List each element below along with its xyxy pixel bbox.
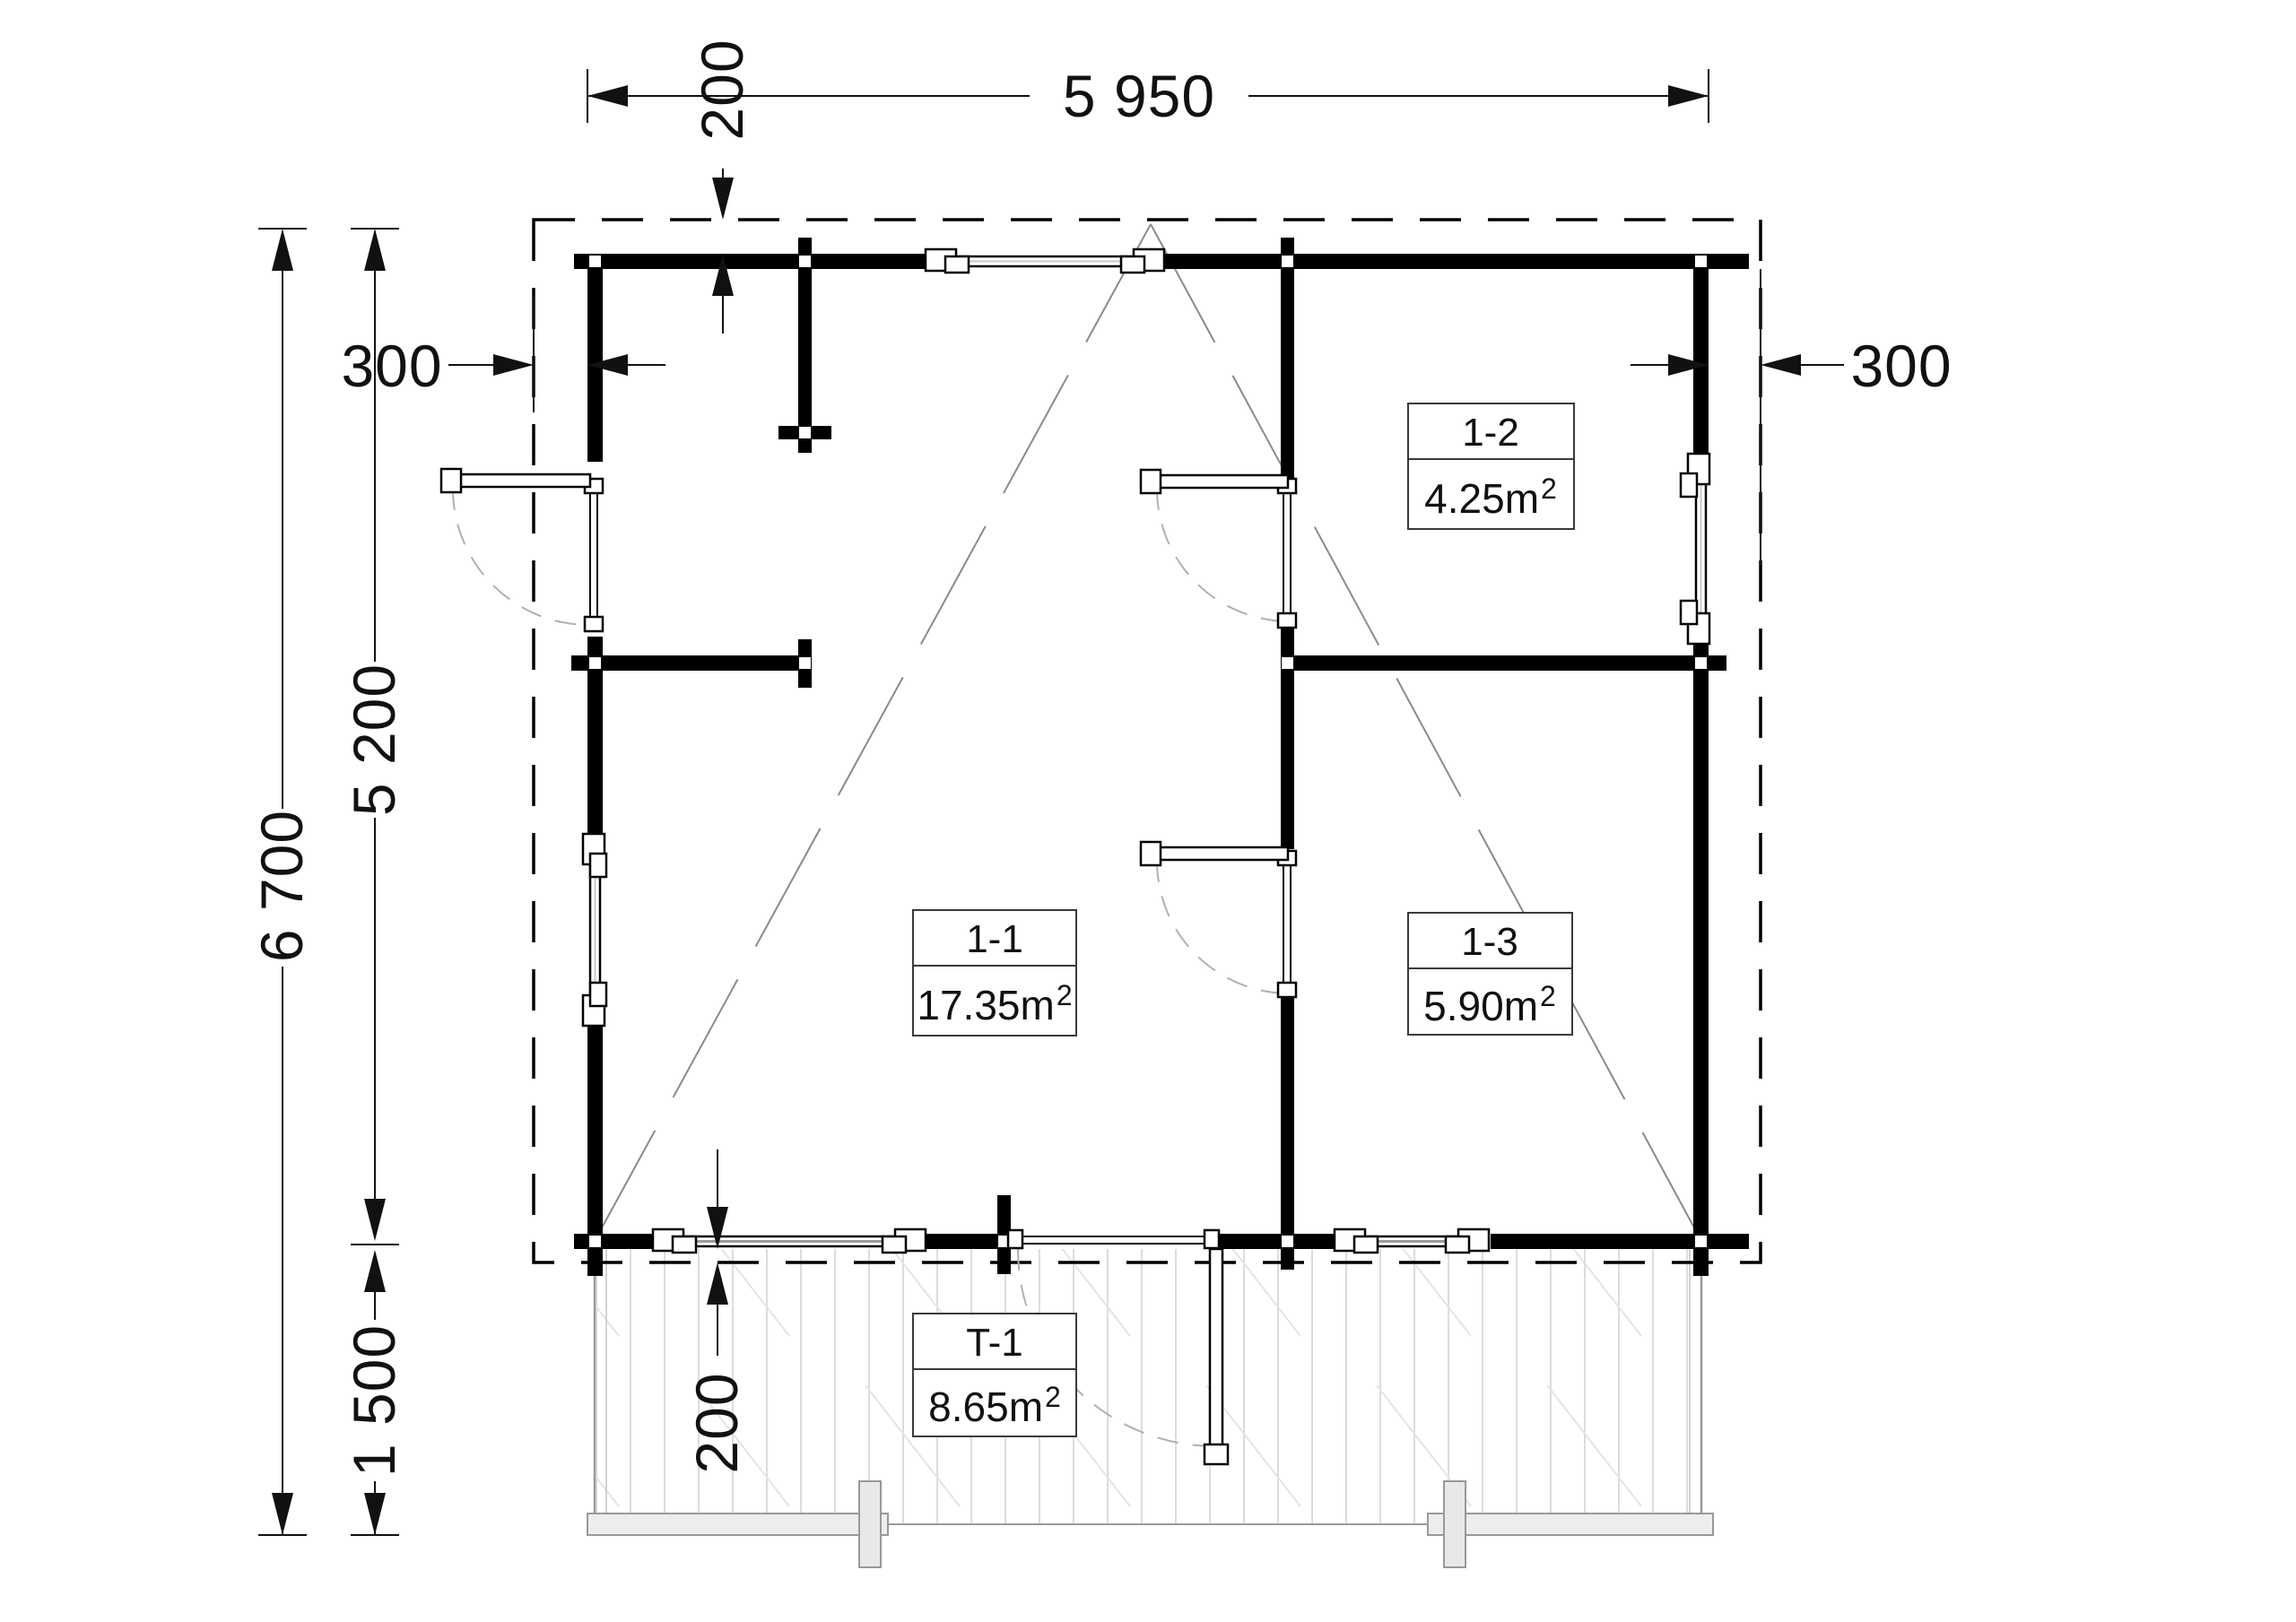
room-id: T-1 — [966, 1321, 1023, 1365]
dim-total-depth: 6 700 — [248, 229, 315, 1535]
dim-left-offset: 300 — [341, 296, 665, 412]
dim-top-width: 5 950 — [587, 63, 1709, 129]
interior-wall-vertical — [1281, 238, 1294, 481]
dim-bottom-overhang-label: 200 — [683, 1372, 750, 1473]
window-left — [583, 834, 606, 1026]
left-wall — [587, 254, 603, 462]
dim-total-depth-label: 6 700 — [248, 810, 315, 962]
door-1-1-to-1-2 — [1141, 470, 1296, 628]
door-1-1-to-1-3 — [1141, 842, 1296, 997]
interior-wall-horizontal-right — [1281, 655, 1726, 671]
floor-plan-canvas: 5 950 200 300 300 6 700 — [0, 0, 2296, 1622]
dim-top-overhang: 200 — [689, 39, 755, 334]
dim-house-depth-label: 5 200 — [341, 664, 407, 816]
interior-wall-vertical — [1281, 990, 1294, 1270]
room-id: 1-2 — [1462, 411, 1519, 455]
bottom-wall — [1210, 1234, 1335, 1249]
right-wall — [1693, 254, 1709, 453]
interior-wall-vertical — [1281, 619, 1294, 849]
walls — [571, 238, 1749, 1276]
door-left-exterior — [441, 469, 603, 631]
terrace-beam — [587, 1514, 888, 1535]
room-label-1-1: 1-1 17.35m2 — [913, 910, 1076, 1036]
dim-terrace-depth-label: 1 500 — [341, 1324, 407, 1477]
room-area: 4.25m2 — [1424, 473, 1557, 522]
top-wall — [1161, 254, 1749, 269]
bottom-wall — [574, 1234, 656, 1249]
room-area: 8.65m2 — [928, 1381, 1061, 1430]
terrace-post — [1444, 1481, 1465, 1567]
room-area: 17.35m2 — [917, 979, 1072, 1028]
floor-plan-drawing: 5 950 200 300 300 6 700 — [0, 0, 2296, 1622]
room-label-T-1: T-1 8.65m2 — [913, 1314, 1076, 1436]
room-id: 1-1 — [966, 917, 1023, 961]
bottom-wall — [1491, 1234, 1749, 1249]
top-wall — [574, 254, 928, 269]
dim-top-width-label: 5 950 — [1063, 63, 1215, 129]
roof-overhang-outline — [534, 220, 1761, 1262]
window-top — [926, 249, 1164, 273]
terrace-deck — [587, 1249, 1713, 1567]
room-label-1-3: 1-3 5.90m2 — [1408, 913, 1572, 1035]
dim-left-offset-label: 300 — [341, 333, 442, 399]
roof-ridge-lines — [595, 224, 1701, 1241]
room-area: 5.90m2 — [1423, 980, 1556, 1029]
partition-stub-vertical — [798, 238, 812, 453]
dim-right-offset: 300 — [1631, 269, 1952, 565]
right-wall — [1693, 643, 1709, 1276]
dim-terrace-depth: 1 500 — [341, 1250, 407, 1535]
terrace-post — [859, 1481, 881, 1567]
terrace-beam — [1428, 1514, 1713, 1535]
interior-wall-horizontal-left — [571, 655, 812, 671]
room-id: 1-3 — [1461, 920, 1518, 964]
dim-right-offset-label: 300 — [1850, 333, 1952, 399]
room-label-1-2: 1-2 4.25m2 — [1408, 403, 1574, 529]
window-right — [1681, 454, 1709, 644]
dim-top-overhang-label: 200 — [689, 39, 755, 140]
